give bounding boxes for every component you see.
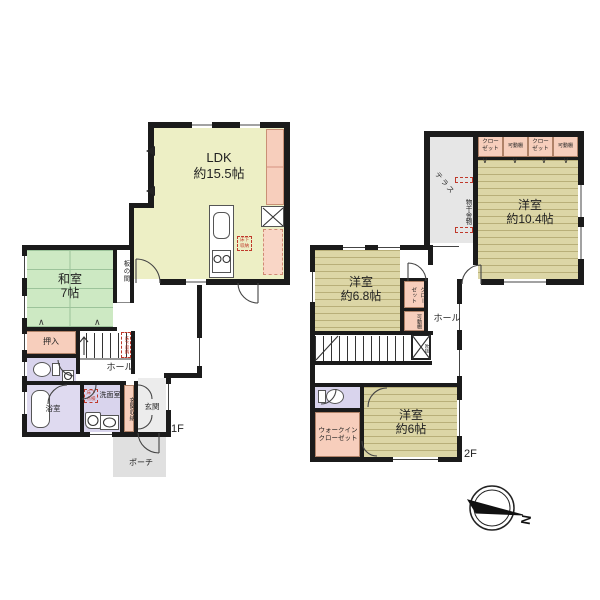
vent-icon [146,186,155,196]
compass: N [452,468,538,554]
hall-2f-label: ホール [417,313,477,324]
wall [404,308,428,311]
wall [22,245,134,250]
toilet-tank-1f [52,363,60,376]
window [343,245,365,250]
wall [310,457,462,462]
underfloor-storage-box: 床下 収納 [237,236,252,251]
toilet-tank-2f [318,390,326,403]
terrace-door [433,243,459,250]
closet-label-1: クロー ゼット [478,139,503,152]
compass-inner-ring [474,490,510,526]
fusuma-icon: ∧ [38,317,45,328]
kitchen-cupboard [261,206,284,227]
window [197,338,202,366]
window [90,432,112,437]
washroom-sink [100,415,119,430]
floor1-label: 1F [171,423,195,436]
stair-annotation: 床下収納 [121,332,131,358]
kitchen-sink [213,212,230,239]
window [504,279,546,285]
wall [129,203,134,250]
kitchen-counter-lower [263,229,283,275]
void-label: 吹抜 [423,340,430,356]
room-ldk-extension [134,208,160,279]
window [578,227,584,259]
laundry-hardware-mark [455,177,473,183]
window [457,350,462,376]
toilet-bowl-2f [326,389,344,404]
door-arc [238,283,258,303]
entrance-label: 玄関 [140,402,164,411]
floor-plan: 床下 収納 床下 点検 ∧ ∧ LDK 約15.5帖 和室 7帖 板の間 押入 … [0,0,600,600]
window [22,334,27,350]
washing-machine [85,412,101,429]
wall [310,408,364,412]
toilet-bowl-1f [33,362,51,377]
floor2-label: 2F [464,448,488,461]
window [22,392,27,414]
wall [424,131,430,245]
folding-door-icon: ∨ [482,156,488,165]
wall [130,247,134,303]
closet-label-3: クロー ゼット [406,283,426,307]
window [240,122,260,128]
wall [284,122,290,285]
window [186,279,206,285]
washroom-label: 洗面室 [96,392,124,400]
window [192,122,212,128]
ldk-label: LDK 約15.5帖 [169,150,269,181]
stairs-2f [315,336,407,361]
vent-icon [146,146,155,156]
window [166,384,171,410]
bath-label: 浴室 [38,404,68,413]
compass-outer-ring [470,486,514,530]
wall [22,327,117,331]
compass-north-label: N [518,514,534,526]
folding-door-icon: ∨ [512,156,518,165]
compass-needle [468,500,523,515]
wall [113,247,117,303]
wic-label: ウォークイン クローゼット [314,427,362,443]
closet-label-2: クロー ゼット [528,139,553,152]
kitchen-stove [212,250,231,273]
fusuma-icon: ∧ [94,317,101,328]
bedroom-small-label: 洋室 約6帖 [361,408,461,437]
wall [80,385,84,432]
wall [310,361,432,365]
wall [22,354,80,358]
window [22,256,27,278]
bedroom-mid-label: 洋室 約6.8帖 [311,275,411,304]
window [22,296,27,318]
porch-label: ポーチ [125,458,157,468]
wall [310,245,433,250]
window [393,457,438,462]
window [22,362,27,376]
wall [22,381,84,385]
wall [424,131,584,137]
wall [148,122,290,128]
oshiire-label: 押入 [33,337,69,347]
wall [76,327,80,374]
wall [310,331,433,335]
wall [310,383,462,387]
wall [78,358,134,360]
shelf-label-2: 可動棚 [553,143,578,149]
entrance-storage-label: 玄関収納 [124,388,134,430]
folding-door-icon: ∨ [541,156,547,165]
hall-1f-label: ホール [90,362,150,373]
wall [134,381,138,432]
washitsu-label: 和室 7帖 [40,272,100,301]
shelf-label-1: 可動棚 [503,143,528,149]
room-porch [113,437,166,477]
wall [160,279,290,285]
bedroom-large-label: 洋室 約10.4帖 [480,198,580,227]
laundry-hardware-label: 物干金物 [459,190,471,234]
window [378,245,400,250]
folding-door-icon: ∨ [563,156,569,165]
itanoma-label: 板の間 [118,251,129,291]
